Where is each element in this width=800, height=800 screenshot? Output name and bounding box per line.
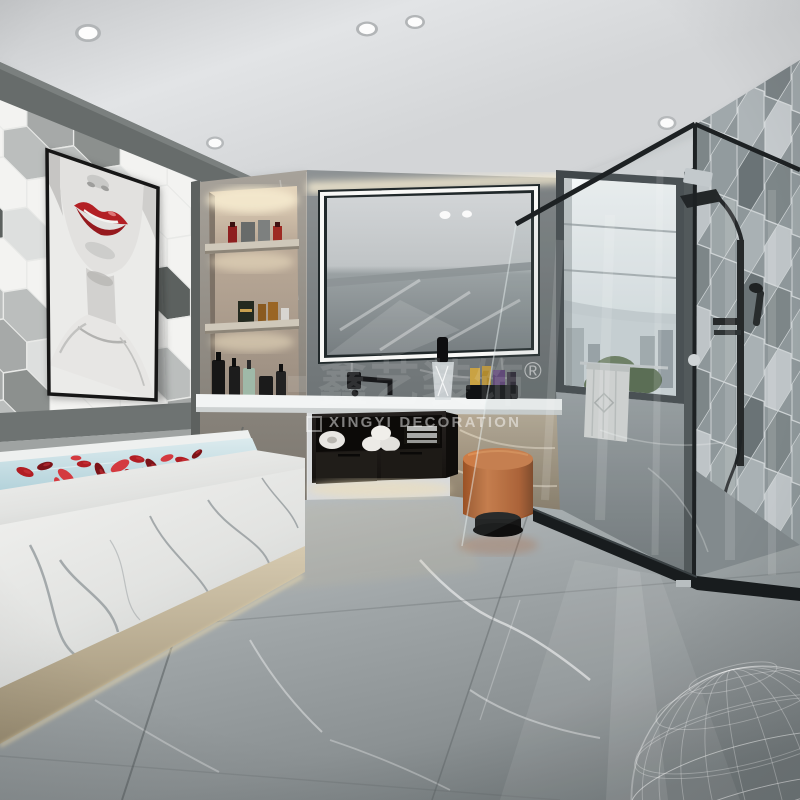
scene-render (0, 0, 800, 800)
bathroom-scene: 鑫艺装饰 ® XINGYI DECORATION (0, 0, 800, 800)
vignette-overlay (0, 0, 800, 800)
